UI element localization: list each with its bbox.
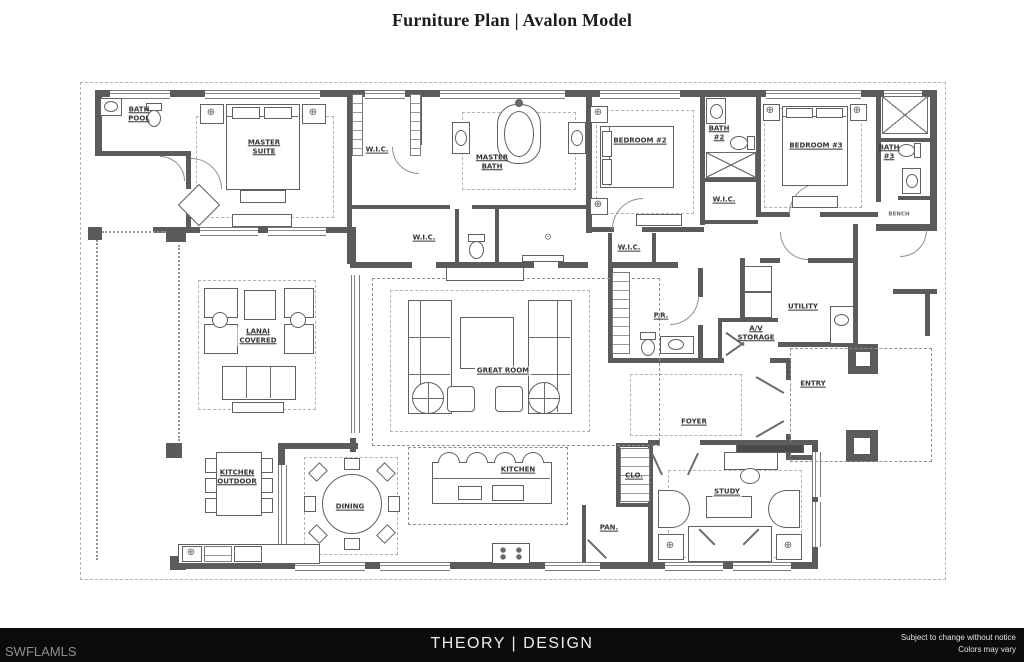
bed-pillow [786, 108, 813, 118]
room-label-bench: BENCH [888, 212, 909, 219]
disclaimer-line-1: Subject to change without notice [901, 632, 1016, 644]
wall [925, 294, 930, 336]
tub-basin [504, 111, 534, 157]
wall [616, 503, 652, 507]
bed-pillow [602, 159, 612, 185]
shower [882, 96, 928, 134]
wall [608, 262, 678, 268]
area-rug [630, 374, 742, 436]
screen-column [166, 227, 186, 242]
lamp-icon: ⊕ [594, 200, 602, 210]
wall [930, 90, 937, 231]
outdoor-chair [205, 478, 217, 493]
coffee-table [460, 317, 514, 369]
wall [558, 262, 588, 268]
outdoor-fridge [234, 546, 262, 562]
room-label-bath-2: BATH #2 [709, 124, 730, 142]
porch-outline [790, 348, 932, 462]
wall [455, 209, 459, 264]
wall [760, 258, 780, 263]
island-counter-line [432, 478, 550, 479]
lamp-icon: ⊕ [666, 541, 674, 551]
toilet-bowl [469, 241, 484, 259]
wall [472, 205, 588, 209]
ceiling-light-icon: ⊙ [544, 234, 552, 243]
swivel-chair [528, 382, 560, 414]
room-label-wic-master-lower: W.I.C. [413, 234, 436, 243]
screen-column [166, 443, 182, 458]
sink-basin [571, 130, 583, 146]
outdoor-chair [261, 478, 273, 493]
dining-chair [344, 458, 360, 470]
sink-basin [906, 174, 918, 188]
sofa-cushion-line [528, 374, 570, 375]
room-label-foyer: FOYER [681, 418, 707, 427]
wall [820, 212, 878, 217]
wall [756, 212, 790, 217]
window [380, 562, 450, 571]
bed-pillow [264, 107, 292, 119]
dining-chair [304, 496, 316, 512]
toilet-bowl [898, 144, 915, 157]
toilet-tank [914, 143, 921, 158]
media-console [446, 267, 524, 281]
outdoor-chair [205, 458, 217, 473]
room-label-bedroom-2: BEDROOM #2 [613, 137, 666, 146]
window [268, 227, 326, 236]
wall [278, 443, 358, 449]
wall [642, 227, 704, 232]
room-label-pantry: PAN. [600, 524, 618, 533]
outdoor-chair [261, 458, 273, 473]
lamp-icon: ⊕ [207, 108, 215, 118]
hall-console [522, 255, 564, 262]
wall [876, 138, 932, 142]
room-label-closet: CLO. [625, 472, 643, 481]
window [278, 465, 287, 545]
lanai-chair [204, 324, 238, 354]
wall [95, 151, 191, 156]
window [600, 90, 680, 99]
armchair [768, 490, 800, 528]
dryer [744, 292, 772, 318]
window [665, 562, 723, 571]
room-label-utility: UTILITY [788, 303, 818, 312]
range [492, 543, 530, 564]
ottoman [232, 402, 284, 413]
tub-faucet [515, 99, 523, 107]
wall [350, 227, 356, 268]
outdoor-chair [261, 498, 273, 513]
coffee-table [244, 290, 276, 320]
screen-line [178, 245, 180, 441]
lamp-icon: ⊕ [853, 106, 861, 116]
toilet-bowl [730, 136, 748, 150]
room-label-dining: DINING [336, 503, 364, 512]
ottoman [495, 386, 523, 412]
wall [893, 289, 937, 294]
sink-basin [668, 339, 684, 350]
wall [352, 262, 412, 268]
plan-sheet: Furniture Plan | Avalon Model [0, 0, 1024, 662]
wall [703, 220, 758, 224]
room-label-entry: ENTRY [800, 380, 826, 389]
sofa-cushion-line [408, 337, 450, 338]
sink-basin [104, 101, 118, 112]
outdoor-sink-cabinet [204, 546, 232, 562]
lanai-sofa [222, 366, 296, 400]
lanai-chair [284, 324, 314, 354]
room-label-master-bath: MASTER BATH [476, 153, 508, 171]
toilet-tank [747, 136, 755, 150]
room-label-wic-hall: W.I.C. [618, 244, 641, 253]
sink-basin [710, 104, 723, 119]
wall [898, 196, 932, 200]
brand-logo: THEORY | DESIGN [0, 635, 1024, 653]
side-table [212, 312, 228, 328]
room-label-bath-3: BATH #3 [879, 143, 900, 161]
washer [744, 266, 772, 292]
screen-column [88, 227, 102, 240]
wall [698, 325, 703, 360]
disclaimer: Subject to change without notice Colors … [901, 632, 1016, 655]
sliding-door [351, 275, 360, 433]
room-label-bath-pool: BATH POOL [128, 105, 150, 123]
footer-bar: SWFLAMLS THEORY | DESIGN Subject to chan… [0, 628, 1024, 662]
wall [718, 318, 722, 362]
dresser [636, 214, 682, 226]
sofa-cushion-line [246, 366, 247, 398]
wall [808, 258, 854, 263]
dining-chair [388, 496, 400, 512]
bed-pillow [602, 131, 612, 157]
wall [350, 438, 356, 452]
window [200, 227, 258, 236]
wall [608, 233, 612, 262]
closet-shelving [352, 94, 363, 156]
room-label-bedroom-3: BEDROOM #3 [789, 142, 842, 151]
bed-pillow [232, 107, 260, 119]
window [545, 562, 600, 571]
page-title: Furniture Plan | Avalon Model [0, 10, 1024, 31]
screen-line [96, 240, 98, 560]
bed-bench [792, 196, 838, 208]
dresser [232, 214, 292, 227]
window [812, 502, 821, 547]
window [205, 90, 320, 99]
room-label-kitchen: KITCHEN [499, 466, 537, 475]
window [440, 90, 565, 99]
screen-line [102, 231, 166, 233]
window [766, 90, 861, 99]
room-label-wic-bedroom-2: W.I.C. [713, 196, 736, 205]
bed-pillow [816, 108, 843, 118]
sofa-cushion-line [408, 374, 450, 375]
wall [700, 90, 705, 225]
shower [706, 152, 756, 178]
room-label-wic-master-top: W.I.C. [366, 146, 389, 155]
closet-shelving [612, 272, 630, 354]
ottoman [447, 386, 475, 412]
wall [756, 90, 761, 217]
wall [495, 209, 499, 264]
wall [652, 233, 656, 262]
grill-burner-icon: ⊕ [187, 548, 195, 558]
island-prep-sink [458, 486, 482, 500]
room-label-lanai-covered: LANAI COVERED [237, 326, 278, 346]
room-label-av-storage: A/V STORAGE [737, 324, 774, 342]
wall [698, 268, 703, 297]
toilet-bowl [641, 339, 655, 356]
desk-chair [740, 468, 760, 484]
disclaimer-line-2: Colors may vary [901, 644, 1016, 656]
sofa-cushion-line [528, 337, 570, 338]
lamp-icon: ⊕ [766, 106, 774, 116]
outdoor-chair [205, 498, 217, 513]
sink-basin [455, 130, 467, 146]
wall [582, 505, 586, 562]
sink-basin [834, 314, 849, 326]
room-label-master-suite: MASTER SUITE [248, 138, 280, 156]
bed-bench [240, 190, 286, 203]
dining-chair [344, 538, 360, 550]
lamp-icon: ⊕ [784, 541, 792, 551]
room-label-kitchen-outdoor: KITCHEN OUTDOOR [217, 468, 257, 486]
sofa-cushion-line [270, 366, 271, 398]
window [733, 562, 791, 571]
island-sink [492, 485, 524, 501]
swivel-chair [412, 382, 444, 414]
wall [588, 227, 614, 232]
lamp-icon: ⊕ [594, 108, 602, 118]
room-label-powder-room: P.R. [654, 312, 669, 321]
room-label-study: STUDY [712, 488, 742, 497]
side-table [290, 312, 306, 328]
wall [703, 178, 758, 182]
window [365, 90, 405, 99]
wall [718, 318, 778, 322]
room-label-great-room: GREAT ROOM [475, 367, 531, 376]
coffee-table [706, 496, 752, 518]
wall [352, 205, 450, 209]
lamp-icon: ⊕ [309, 108, 317, 118]
closet-shelving [410, 94, 421, 156]
